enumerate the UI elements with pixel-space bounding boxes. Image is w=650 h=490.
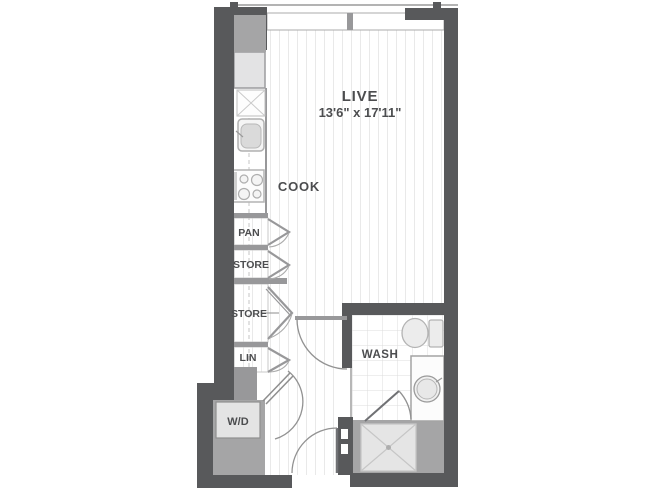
burner-icon <box>239 189 250 200</box>
wall-notch <box>341 429 348 439</box>
wall-left-lower <box>197 400 213 488</box>
laundry-closet <box>213 400 265 475</box>
bathroom <box>352 315 444 473</box>
closet-divider <box>234 367 257 400</box>
shaft-column <box>234 15 266 52</box>
floor-plan-canvas: LIVE 13'6" x 17'11" COOK PAN STORE STORE… <box>0 0 650 490</box>
floor-plan: LIVE 13'6" x 17'11" COOK PAN STORE STORE… <box>0 0 650 490</box>
vanity <box>411 356 444 421</box>
wall-right <box>444 8 458 487</box>
wall-bottom-left <box>197 475 292 488</box>
wall-notch <box>341 444 348 454</box>
closet-label-linen: LIN <box>240 352 257 364</box>
wall-bathroom-top <box>342 303 444 315</box>
range-stove <box>233 170 264 202</box>
wall-bottom-right <box>350 473 444 487</box>
refrigerator <box>234 52 265 88</box>
burner-icon <box>240 175 248 183</box>
wall-bathroom-left-upper <box>342 315 352 368</box>
wall-left <box>214 7 234 383</box>
room-label-live: LIVE <box>342 88 379 105</box>
closet-divider <box>234 213 268 218</box>
dishwasher <box>237 90 265 116</box>
closet-label-storage-upper: STORE <box>233 259 269 271</box>
burner-icon <box>252 175 263 186</box>
toilet <box>402 319 443 348</box>
room-label-cook: COOK <box>278 179 320 194</box>
closet-divider <box>234 245 268 250</box>
wood-floor-living <box>266 20 444 303</box>
closet-label-storage-lower: STORE <box>231 308 267 320</box>
window-mullion <box>347 13 353 30</box>
doorway-edge <box>350 368 352 417</box>
closet-boxes <box>234 218 268 372</box>
burner-icon <box>253 190 261 198</box>
kitchen-sink <box>236 119 264 151</box>
shower <box>361 424 416 471</box>
wall-left-jog <box>197 383 234 400</box>
hall-door-header <box>295 316 347 320</box>
closet-divider <box>234 278 287 284</box>
closet-label-washer-dryer: W/D <box>227 416 248 428</box>
room-dimensions-live: 13'6" x 17'11" <box>319 105 402 120</box>
shower-drain-icon <box>386 445 391 450</box>
closet-label-pantry: PAN <box>238 227 259 239</box>
closet-divider <box>234 342 268 347</box>
room-label-wash: WASH <box>362 349 399 361</box>
